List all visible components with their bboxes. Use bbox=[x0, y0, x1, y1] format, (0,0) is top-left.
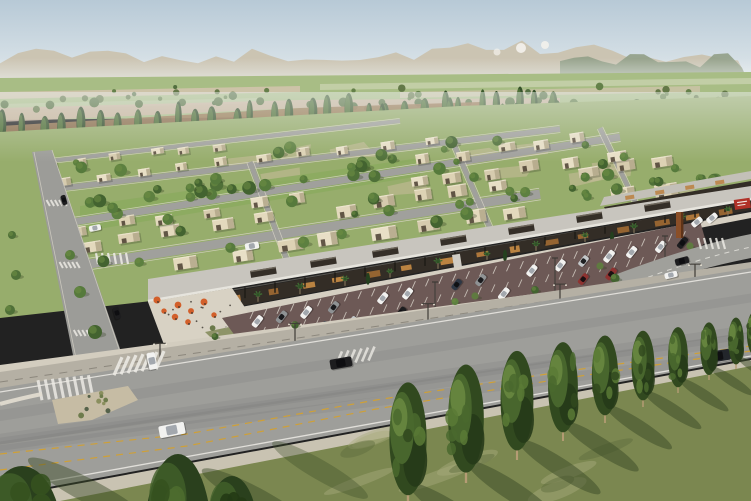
palm-crown bbox=[535, 243, 538, 246]
house bbox=[484, 168, 502, 183]
poplar-clump bbox=[677, 368, 682, 377]
poplar-clump bbox=[734, 349, 739, 354]
tree-highlight bbox=[226, 243, 232, 249]
street-lamp bbox=[288, 323, 290, 325]
poplar-clump bbox=[748, 338, 751, 344]
tree-highlight bbox=[699, 175, 703, 179]
tree-highlight bbox=[466, 198, 470, 202]
tree-highlight bbox=[98, 256, 105, 263]
tree-highlight bbox=[369, 193, 375, 199]
boulder bbox=[225, 326, 227, 328]
tree-highlight bbox=[470, 173, 475, 178]
field-tree bbox=[173, 85, 177, 89]
pedestrian bbox=[196, 320, 198, 322]
cafe-table bbox=[188, 323, 190, 325]
street-lamp bbox=[153, 343, 155, 345]
tree-highlight bbox=[452, 299, 456, 303]
tree-highlight bbox=[144, 192, 150, 198]
cafe-umbrella bbox=[172, 314, 178, 320]
cafe-table bbox=[164, 312, 166, 314]
cypress bbox=[503, 250, 507, 262]
median-shrub bbox=[103, 398, 108, 403]
distance-haze bbox=[0, 92, 751, 162]
tree-highlight bbox=[195, 179, 199, 183]
poplar-clump bbox=[414, 427, 426, 446]
tree-highlight bbox=[431, 216, 438, 223]
poplar-clump bbox=[707, 335, 711, 346]
cafe-table bbox=[204, 303, 206, 305]
pedestrian bbox=[229, 304, 231, 306]
tree-highlight bbox=[9, 232, 13, 236]
house-opening bbox=[507, 214, 513, 220]
tree-highlight bbox=[434, 163, 441, 170]
poplar-clump bbox=[670, 336, 675, 344]
tree-highlight bbox=[243, 182, 251, 190]
pedestrian bbox=[219, 311, 221, 313]
poplar-clump bbox=[392, 458, 400, 477]
palm-crown bbox=[256, 293, 259, 296]
tree-highlight bbox=[356, 161, 363, 168]
tree-highlight bbox=[348, 163, 353, 168]
house-opening bbox=[492, 186, 497, 191]
tree-highlight bbox=[611, 274, 616, 279]
street-lamp bbox=[165, 343, 167, 345]
poplar-clump bbox=[645, 369, 652, 381]
house-opening bbox=[620, 165, 625, 171]
house-opening bbox=[122, 238, 127, 243]
snow-peak bbox=[516, 43, 526, 53]
house-opening bbox=[216, 225, 221, 231]
palm-crown bbox=[727, 208, 730, 211]
atmosphere bbox=[0, 92, 751, 162]
cafe-table bbox=[157, 301, 159, 303]
tree-highlight bbox=[461, 208, 468, 215]
median-shrub bbox=[78, 412, 84, 418]
house-opening bbox=[254, 202, 259, 208]
poplar-clump bbox=[669, 353, 676, 360]
street-lamp bbox=[700, 264, 702, 266]
poplar-clump bbox=[447, 442, 456, 455]
house-opening bbox=[177, 263, 183, 270]
tree-highlight bbox=[612, 184, 618, 190]
tree-highlight bbox=[12, 271, 18, 277]
tree-highlight bbox=[581, 173, 586, 178]
house-opening bbox=[414, 181, 418, 186]
island-tree bbox=[596, 262, 603, 269]
pedestrian bbox=[202, 327, 204, 329]
tree-highlight bbox=[154, 186, 159, 191]
house-opening bbox=[206, 213, 210, 218]
cafe-table bbox=[175, 318, 177, 320]
poplar-clump bbox=[446, 429, 458, 441]
car-cabin bbox=[249, 243, 256, 249]
house-opening bbox=[99, 178, 103, 182]
tree-highlight bbox=[228, 185, 233, 190]
poplar-clump bbox=[445, 408, 458, 426]
poplar-clump bbox=[502, 413, 510, 427]
poplar-clump bbox=[606, 386, 612, 399]
cypress bbox=[366, 273, 370, 285]
house-opening bbox=[121, 221, 125, 226]
house-opening bbox=[163, 231, 168, 237]
poplar-clump bbox=[701, 330, 705, 340]
palm-crown bbox=[436, 260, 439, 263]
house bbox=[414, 187, 434, 203]
cafe-table bbox=[191, 312, 193, 314]
palm-crown bbox=[344, 278, 347, 281]
poplar-clump bbox=[728, 336, 733, 342]
street-lamp bbox=[565, 284, 567, 286]
tree-highlight bbox=[352, 211, 356, 215]
palm-crown bbox=[486, 253, 488, 255]
house-opening bbox=[236, 256, 241, 262]
tree-highlight bbox=[76, 162, 82, 168]
field-tree bbox=[596, 83, 604, 91]
cafe-table bbox=[214, 316, 216, 318]
palm-crown bbox=[389, 271, 392, 274]
poplar-clump bbox=[592, 384, 601, 395]
car bbox=[111, 306, 122, 320]
car-cabin bbox=[336, 358, 346, 367]
median-shrub bbox=[102, 402, 105, 405]
poplar-clump bbox=[403, 429, 413, 442]
tree-highlight bbox=[6, 306, 12, 312]
tree-highlight bbox=[135, 258, 140, 263]
tree-highlight bbox=[511, 195, 515, 199]
foliage-clump bbox=[31, 474, 51, 496]
snow-peak bbox=[541, 41, 549, 49]
median-shrub bbox=[84, 407, 88, 411]
tree-highlight bbox=[163, 215, 169, 221]
street-lamp bbox=[433, 304, 435, 306]
tree-highlight bbox=[115, 165, 122, 172]
house bbox=[317, 230, 340, 249]
poplar-clump bbox=[548, 375, 557, 392]
street-lamp bbox=[553, 284, 555, 286]
pedestrian bbox=[172, 309, 174, 311]
median-shrub bbox=[105, 408, 110, 413]
cafe-umbrella bbox=[153, 296, 160, 303]
street-lamp bbox=[421, 304, 423, 306]
tree-highlight bbox=[186, 193, 191, 198]
house-opening bbox=[282, 245, 288, 251]
poplar-clump bbox=[676, 355, 680, 363]
tree-highlight bbox=[75, 287, 82, 294]
poplar-clump bbox=[711, 336, 715, 344]
aerial-rendering-canvas bbox=[0, 0, 751, 501]
tree-highlight bbox=[532, 287, 536, 291]
tree-highlight bbox=[212, 334, 216, 338]
house-opening bbox=[158, 220, 162, 225]
tree-highlight bbox=[384, 206, 390, 212]
tree-highlight bbox=[603, 169, 610, 176]
poplar-clump bbox=[593, 348, 600, 362]
palm-crown bbox=[633, 225, 636, 228]
poplar-clump bbox=[728, 345, 733, 351]
median-shrub bbox=[100, 394, 104, 398]
monument-side bbox=[681, 212, 683, 238]
poplar-clump bbox=[460, 430, 468, 445]
poplar-clump bbox=[504, 381, 513, 393]
island-tree bbox=[471, 292, 478, 299]
house-opening bbox=[445, 178, 450, 184]
tree-highlight bbox=[649, 178, 654, 183]
house-opening bbox=[655, 162, 660, 168]
street-lamp bbox=[688, 264, 690, 266]
shrub bbox=[210, 325, 216, 331]
poplar-clump bbox=[736, 331, 740, 339]
cafe-table bbox=[178, 306, 180, 308]
tree-highlight bbox=[186, 184, 191, 189]
poplar-clump bbox=[638, 363, 643, 374]
tree-highlight bbox=[506, 187, 511, 192]
tree-highlight bbox=[94, 195, 101, 202]
pedestrian bbox=[168, 314, 170, 316]
tree-highlight bbox=[211, 174, 217, 180]
tree-highlight bbox=[569, 185, 573, 189]
median-shrub bbox=[88, 395, 91, 398]
poplar-clump bbox=[639, 345, 646, 357]
house-opening bbox=[340, 212, 345, 219]
poplar-clump bbox=[636, 379, 643, 393]
tree-highlight bbox=[655, 178, 660, 183]
tree-highlight bbox=[369, 171, 376, 178]
pedestrian bbox=[202, 307, 204, 309]
house-opening bbox=[522, 166, 527, 172]
house-opening bbox=[421, 225, 427, 232]
poplar-clump bbox=[393, 409, 402, 426]
tree-highlight bbox=[521, 188, 527, 194]
palm-crown bbox=[584, 234, 587, 237]
tree-highlight bbox=[66, 251, 72, 257]
palm-crown bbox=[298, 285, 301, 288]
snow-peak bbox=[494, 49, 501, 56]
tree-highlight bbox=[300, 176, 304, 180]
tree-highlight bbox=[260, 180, 267, 187]
tree-highlight bbox=[456, 200, 461, 205]
pedestrian bbox=[190, 301, 192, 303]
tree-highlight bbox=[584, 193, 589, 198]
cafe-umbrella bbox=[188, 308, 194, 314]
poplar-clump bbox=[571, 393, 578, 408]
poplar-clump bbox=[518, 374, 528, 389]
tree-highlight bbox=[176, 227, 182, 233]
cafe-umbrella bbox=[201, 299, 208, 306]
tree-highlight bbox=[287, 196, 293, 202]
house-opening bbox=[257, 217, 262, 222]
median-shrub bbox=[96, 399, 101, 404]
tree-highlight bbox=[89, 326, 97, 334]
poplar-clump bbox=[611, 372, 620, 381]
house-opening bbox=[375, 234, 381, 241]
tree-highlight bbox=[299, 237, 305, 243]
poplar-clump bbox=[570, 352, 576, 371]
rendering-root bbox=[0, 0, 751, 501]
cafe-umbrella bbox=[175, 302, 182, 309]
tree-highlight bbox=[672, 165, 677, 170]
tree-highlight bbox=[337, 230, 343, 236]
poplar-clump bbox=[462, 405, 470, 423]
poplar-clump bbox=[669, 373, 676, 380]
field-tree bbox=[398, 84, 405, 91]
tree-highlight bbox=[86, 198, 92, 204]
street-lamp bbox=[300, 323, 302, 325]
poplar-clump bbox=[568, 408, 575, 420]
poplar-clump bbox=[644, 382, 649, 392]
